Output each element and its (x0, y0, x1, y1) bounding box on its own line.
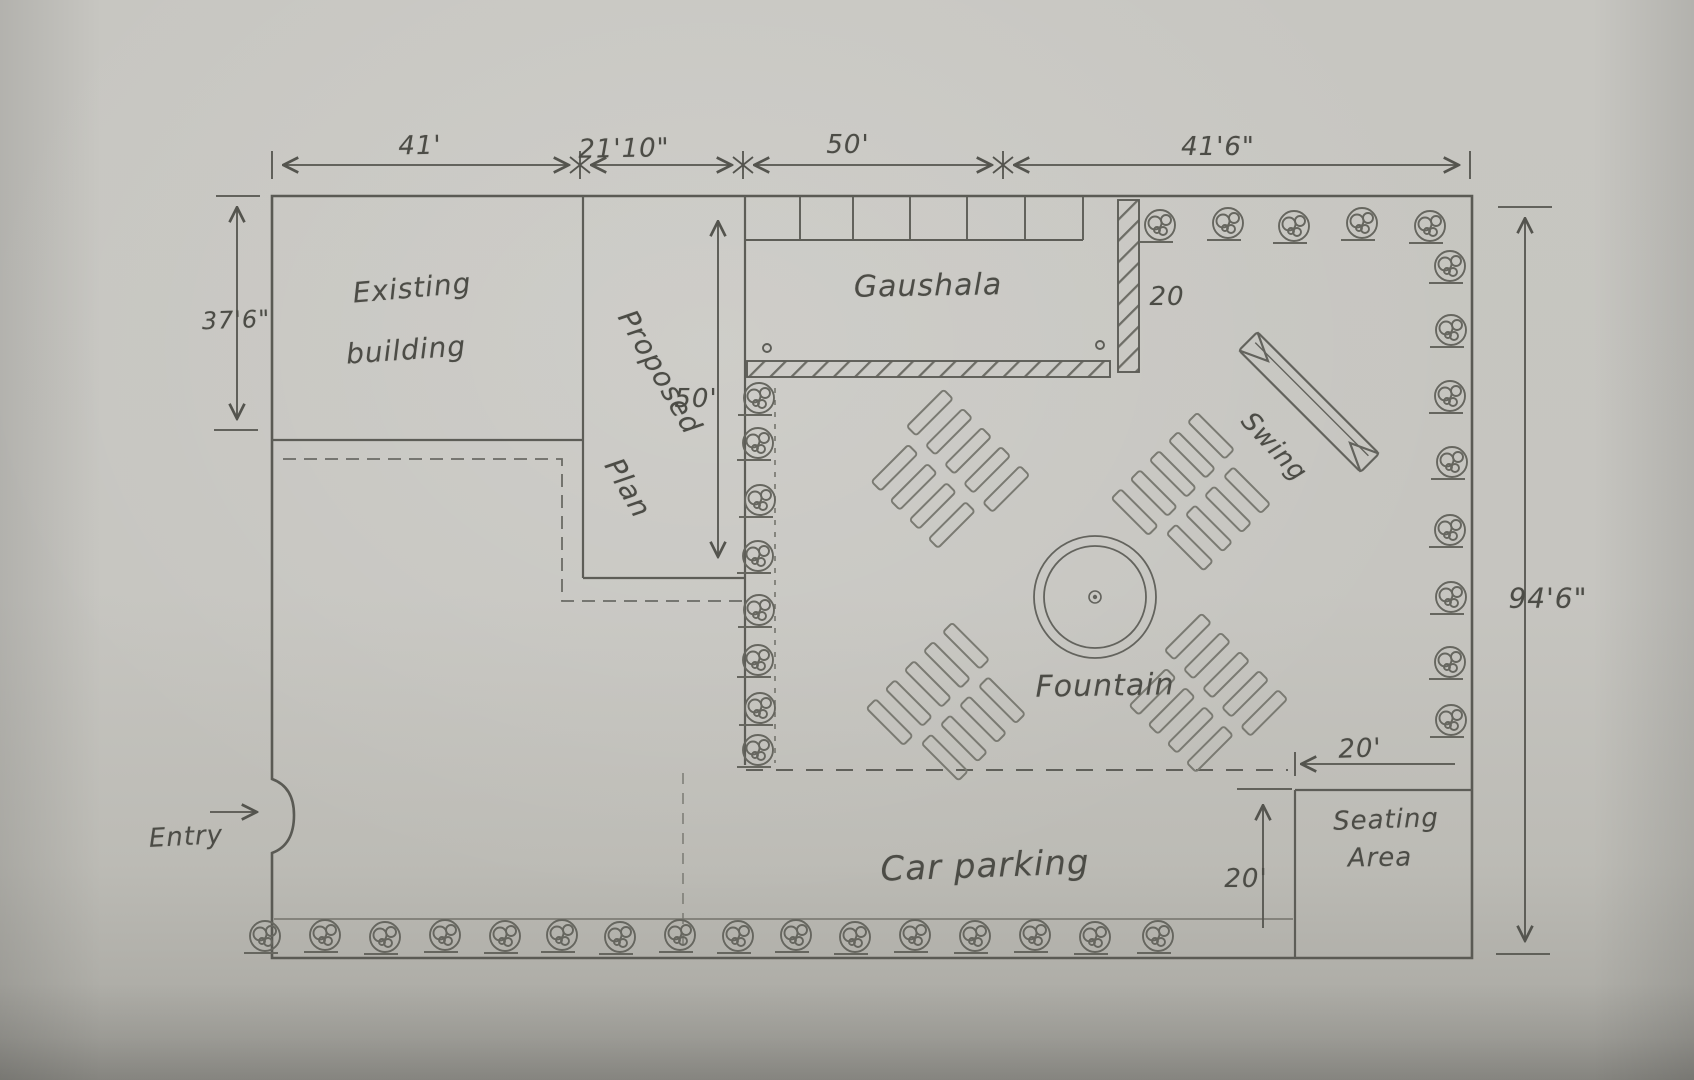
gaushala-label: Gaushala (854, 267, 1003, 305)
seating-area-label-line1: Seating (1333, 803, 1440, 837)
existing-building-outline (272, 196, 583, 440)
tree-row-bottom (244, 920, 1173, 954)
dim-label-50ft-top: 50' (826, 130, 869, 160)
dim-label-94ft6in: 94'6" (1508, 582, 1587, 615)
gaushala-stall-row (745, 196, 1083, 240)
fountain-label: Fountain (1035, 667, 1175, 704)
tree-column-right (1429, 251, 1467, 737)
dim-label-21ft10in: 21'10" (578, 133, 670, 165)
fountain-drawing (1034, 536, 1156, 658)
dim-label-20ft-seating-width: 20' (1338, 733, 1382, 764)
dim-star-tick (733, 151, 753, 179)
tree-row-top (1139, 208, 1445, 243)
dim-star-tick (993, 151, 1013, 179)
dim-label-20-gaushala: 20 (1149, 282, 1184, 312)
dim-label-41ft6in: 41'6" (1181, 132, 1255, 162)
dim-label-20ft-seating-depth: 20' (1224, 864, 1267, 894)
gaushala-hatched-band (747, 361, 1110, 377)
gaushala-post-dot (763, 344, 771, 352)
walkway-southwest (867, 623, 1035, 791)
courtyard-dashed-outline (283, 459, 744, 601)
gaushala-hatched-wall (1118, 200, 1139, 372)
seating-area-label-line2: Area (1348, 842, 1413, 873)
entry-label: Entry (148, 820, 224, 854)
paper-sheet: { "dims": { "top": ["41'", "21'10\"", "5… (0, 0, 1694, 1080)
car-parking-label: Car parking (880, 842, 1090, 889)
gaushala-post-dot (1096, 341, 1104, 349)
site-boundary (272, 196, 1472, 958)
dim-label-41ft: 41' (398, 131, 442, 162)
dim-label-37ft6in: 37'6" (201, 305, 270, 335)
site-plan-drawing (0, 0, 1694, 1080)
walkway-northwest (862, 390, 1030, 558)
tree-column-middle (737, 383, 775, 767)
